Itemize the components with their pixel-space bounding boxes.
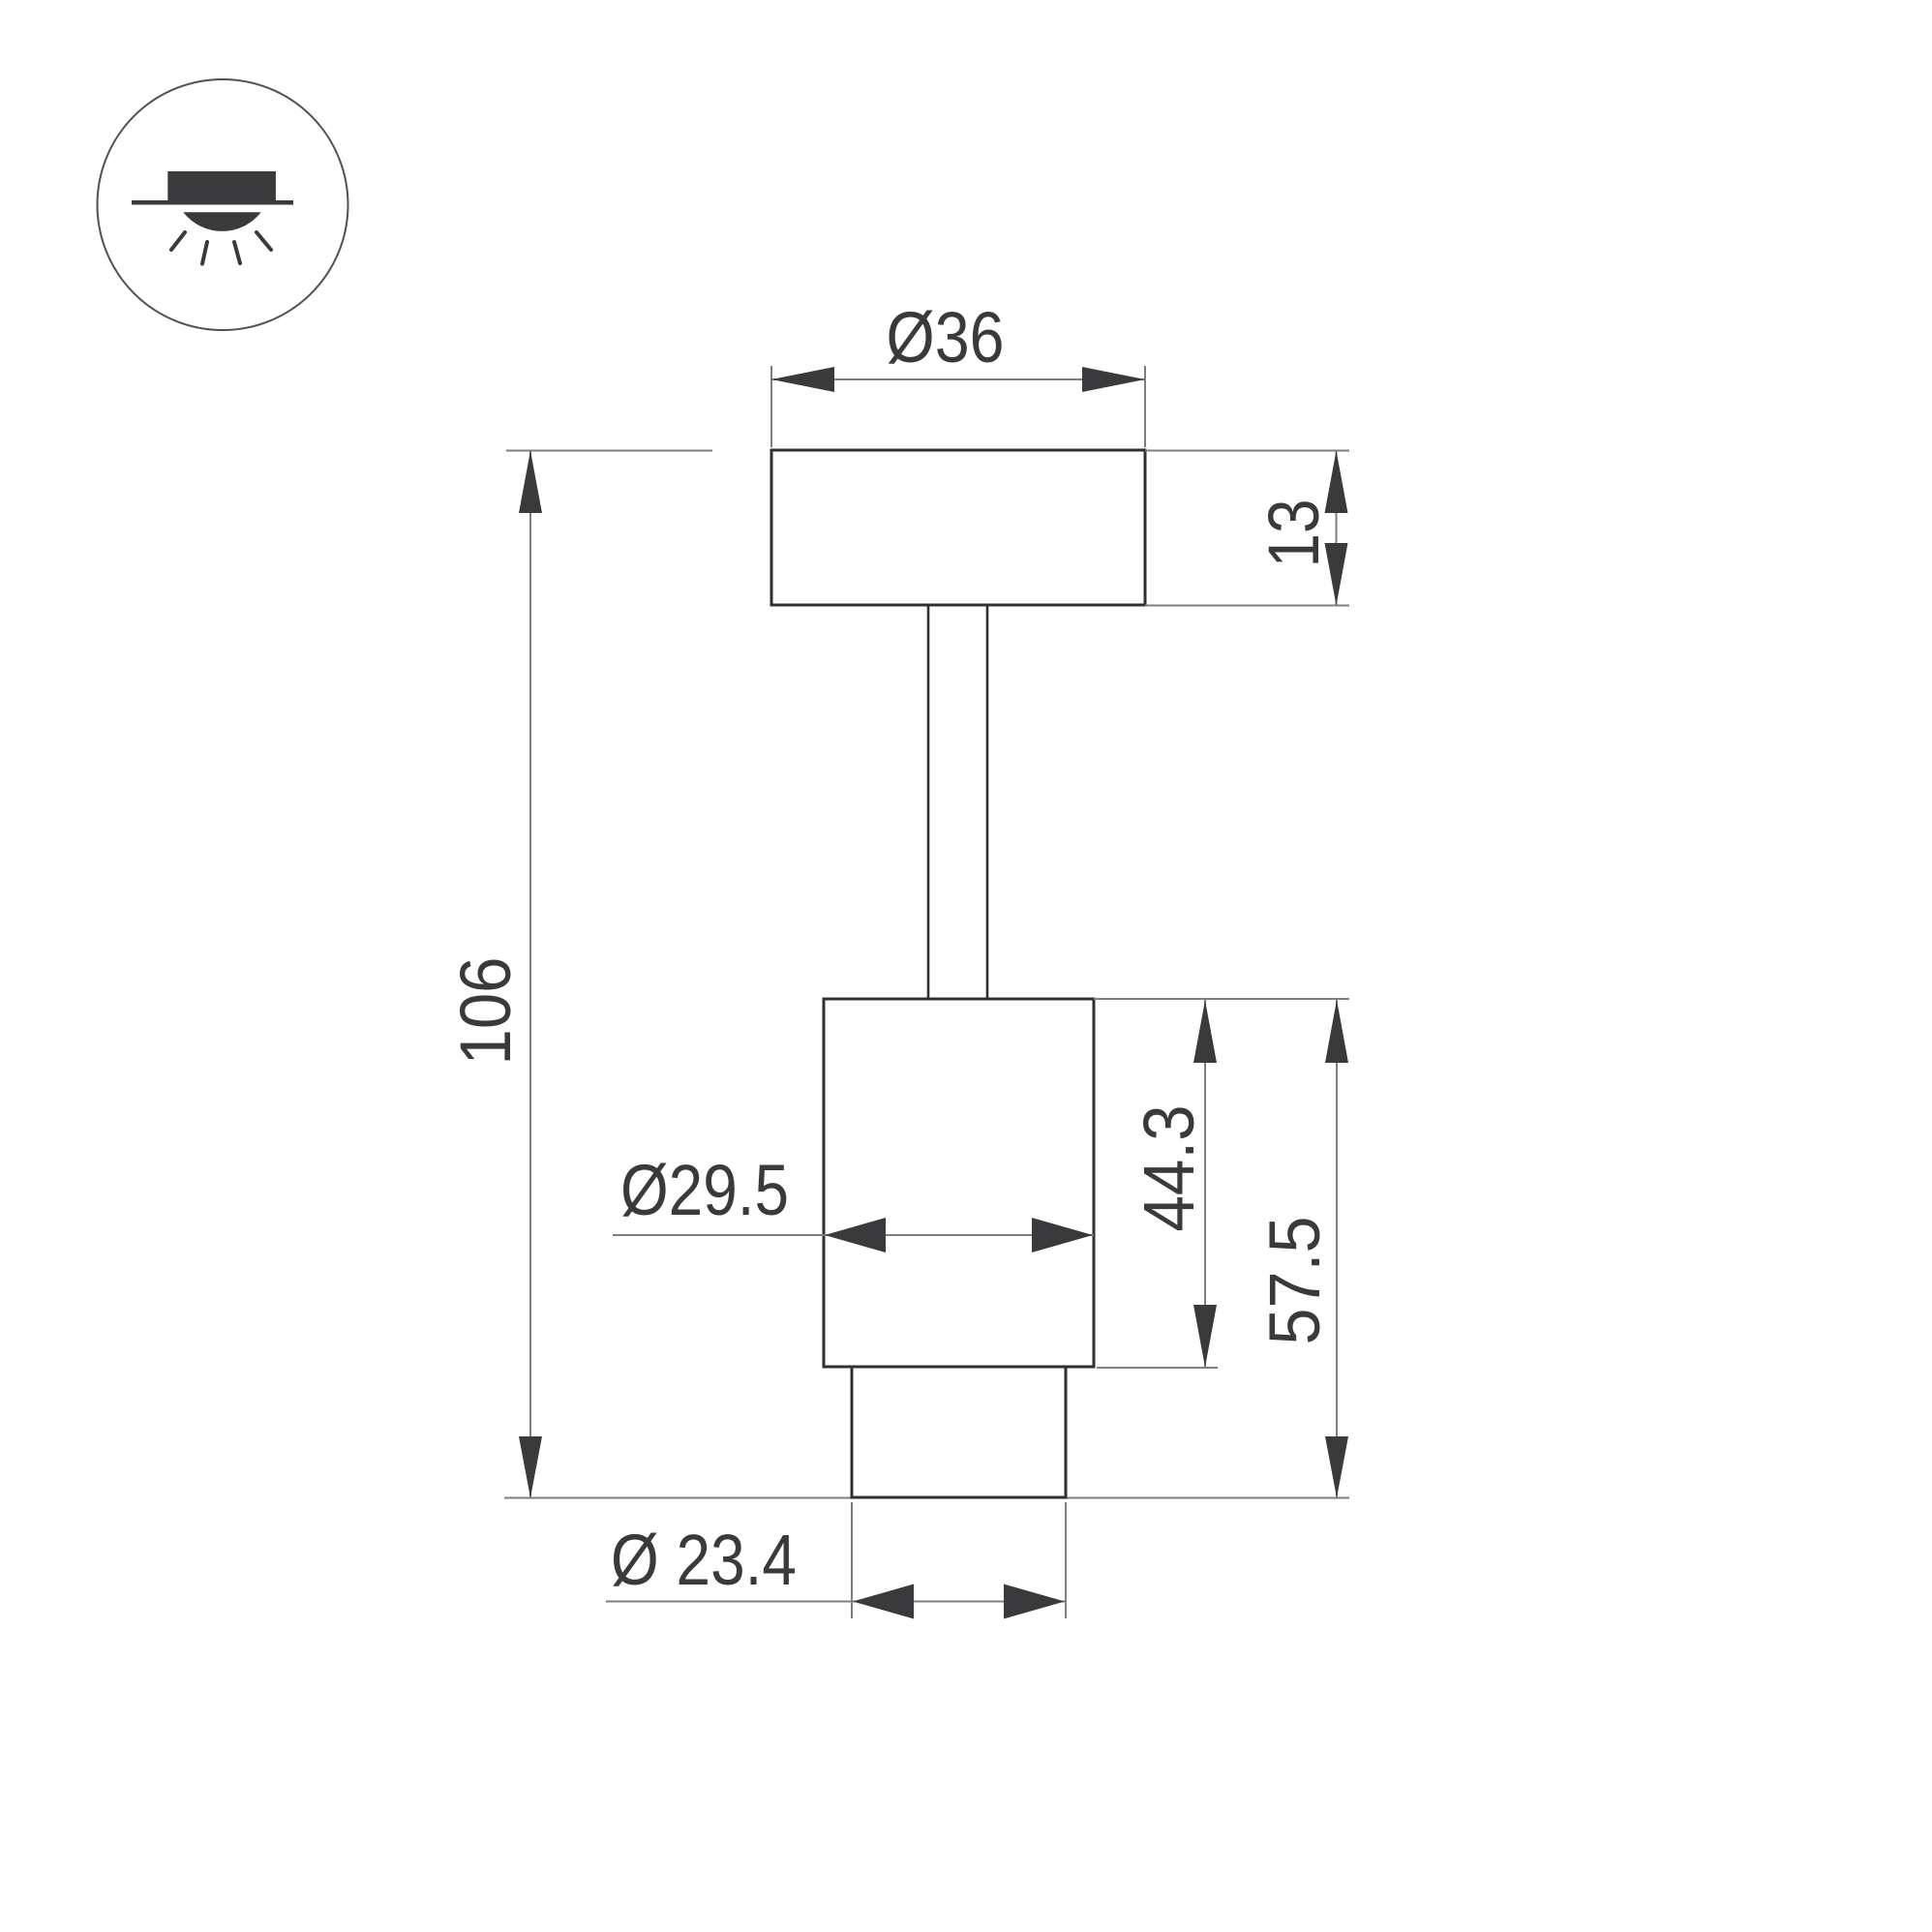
svg-text:44.3: 44.3 (1129, 1105, 1209, 1232)
svg-text:106: 106 (445, 957, 526, 1066)
svg-text:13: 13 (1253, 499, 1334, 568)
svg-text:57.5: 57.5 (1254, 1217, 1335, 1345)
svg-text:Ø36: Ø36 (887, 297, 1005, 377)
svg-text:Ø 23.4: Ø 23.4 (611, 1520, 797, 1600)
svg-text:Ø29.5: Ø29.5 (620, 1150, 789, 1230)
